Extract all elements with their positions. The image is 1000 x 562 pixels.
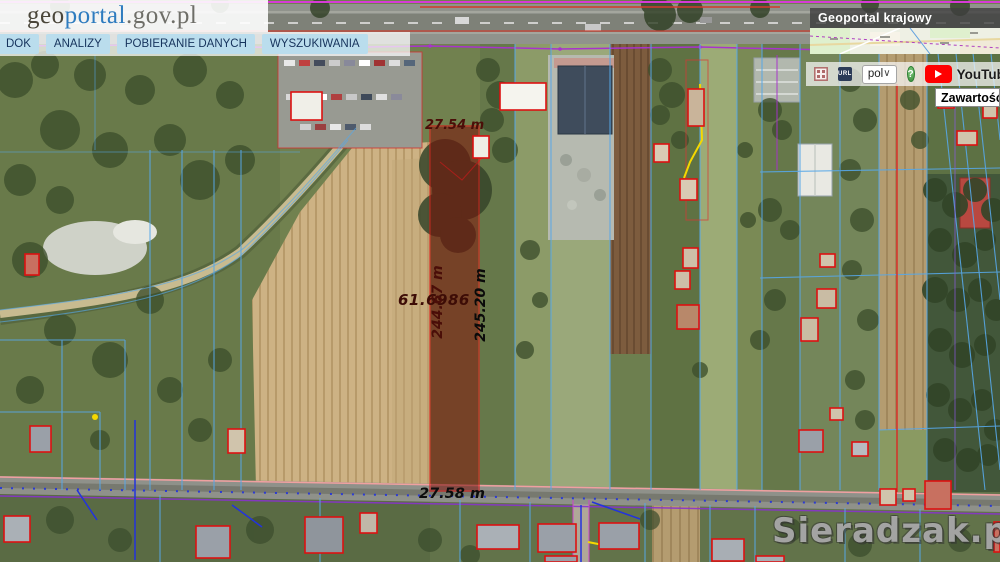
menu-item-analizy[interactable]: ANALIZY bbox=[46, 34, 110, 54]
overview-map-title[interactable]: Geoportal krajowy bbox=[810, 8, 1000, 28]
logo-part-suffix: .gov.pl bbox=[126, 2, 197, 29]
logo-panel: geoportal.gov.pl bbox=[0, 0, 268, 32]
geoportal-app: 27.54 m 61.6986 244.67 m 245.20 m 27.58 … bbox=[0, 0, 1000, 562]
logo-part-geo: geo bbox=[27, 2, 65, 29]
geoportal-logo[interactable]: geoportal.gov.pl bbox=[27, 3, 197, 29]
overview-map-panel: Geoportal krajowy bbox=[810, 8, 1000, 54]
youtube-play-icon bbox=[925, 65, 952, 83]
overview-map-inset[interactable] bbox=[810, 28, 1000, 54]
menu-bar: DOK ANALIZY POBIERANIE DANYCH WYSZUKIWAN… bbox=[0, 32, 410, 56]
help-button[interactable]: ? bbox=[907, 66, 915, 82]
url-link-icon[interactable]: URL bbox=[838, 67, 852, 81]
legend-grid-icon[interactable] bbox=[814, 67, 828, 81]
highlighted-parcel bbox=[430, 126, 479, 491]
logo-part-portal: portal bbox=[65, 2, 126, 29]
menu-item-pobieranie-danych[interactable]: POBIERANIE DANYCH bbox=[117, 34, 255, 54]
youtube-link[interactable]: YouTube bbox=[925, 65, 1000, 83]
menu-item-widok[interactable]: DOK bbox=[0, 34, 39, 54]
map-toolbar: URL pol ∨ ? YouTube bbox=[806, 62, 1000, 86]
map-contents-panel-title[interactable]: Zawartość m bbox=[935, 88, 1000, 107]
chevron-down-icon: ∨ bbox=[883, 69, 890, 79]
youtube-label: YouTube bbox=[957, 67, 1000, 82]
language-value: pol bbox=[868, 68, 883, 80]
language-select[interactable]: pol ∨ bbox=[862, 65, 897, 84]
menu-item-wyszukiwania[interactable]: WYSZUKIWANIA bbox=[262, 34, 368, 54]
overview-map-graphic bbox=[810, 28, 1000, 54]
